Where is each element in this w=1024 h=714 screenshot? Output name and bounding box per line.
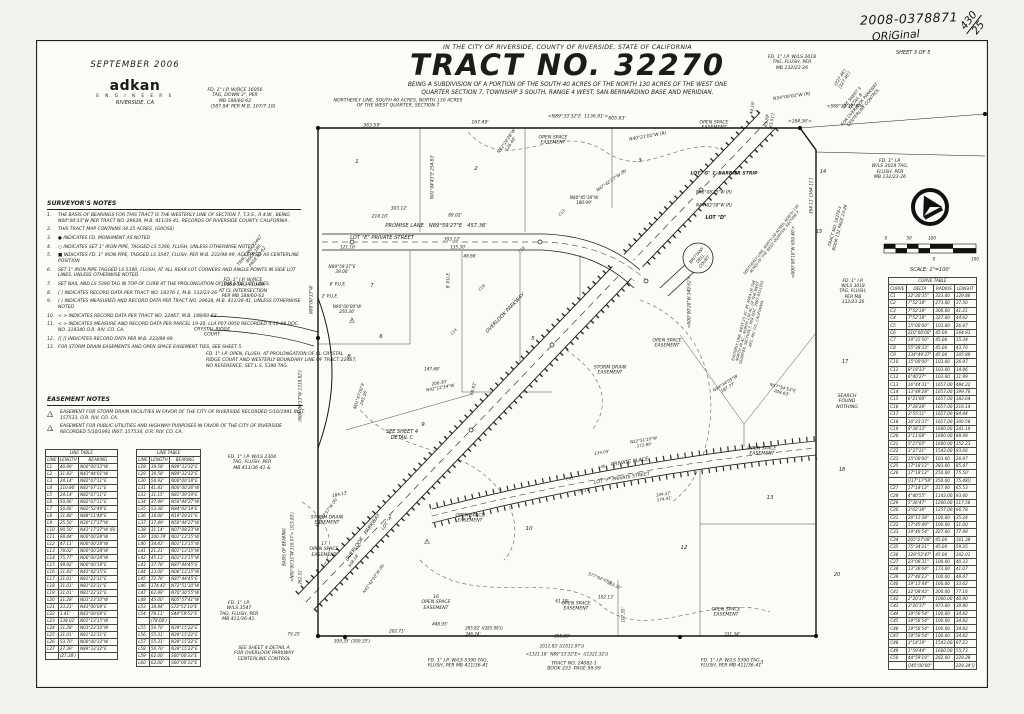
table-row: L4413.00'N06°13'15"W: [137, 568, 201, 575]
table-row: L4845.00'N05°57'41"W: [137, 596, 201, 603]
table-row: L2431.28'N03°23'10"W: [46, 624, 118, 631]
table-cell: N43°44'01"W: [78, 470, 117, 477]
table-cell: 1543.00: [934, 447, 955, 454]
table-cell: L18: [46, 582, 59, 589]
table-row: C172°55'11"1657.0084.44: [889, 411, 977, 418]
table-cell: 1657.00: [934, 411, 955, 418]
table-cell: 62.89': [149, 589, 169, 596]
table-cell: C44: [889, 610, 907, 617]
table-cell: 15°00'00": [906, 322, 934, 329]
table-row: C3575°34'21"45.0059.35: [889, 544, 977, 551]
table-row: C198°38'13"1600.00241.19: [889, 425, 977, 432]
table-cell: 1.41': [58, 610, 78, 617]
table-header-cell: RADIUS: [934, 285, 955, 292]
table-row: C1015°00'00"103.0026.97: [889, 359, 977, 366]
table-cell: 50.06': [58, 498, 78, 505]
table-cell: 55.73: [954, 647, 976, 654]
table-cell: 327.00: [934, 314, 955, 321]
table-row: C2517°18'12"283.0085.47: [889, 462, 977, 469]
table-row: C118°19'33"103.0014.96: [889, 366, 977, 373]
table-cell: C22: [889, 447, 907, 454]
table-cell: 65.53: [954, 484, 976, 491]
table-cell: 15°00'00": [906, 359, 934, 366]
table-cell: 45.00: [934, 337, 955, 344]
table-cell: 8°19'33": [906, 366, 934, 373]
table-cell: 37.76': [149, 561, 169, 568]
table-cell: L10: [46, 526, 59, 533]
table-cell: N50°44'27"W: [169, 498, 201, 505]
table-cell: 14.96: [954, 366, 976, 373]
table-cell: C15: [889, 396, 907, 403]
table-cell: L44: [137, 568, 150, 575]
table-row: L5478.11'S44°59'52"E: [137, 610, 201, 617]
table-cell: C50: [889, 654, 907, 661]
table-cell: N89°33'32"E: [169, 463, 201, 470]
surveyor-note-item: 9.( ) INDICATES MEASURED AND RECORD DATA…: [47, 299, 301, 311]
table-cell: C31: [889, 514, 907, 521]
table-cell: L22: [46, 610, 59, 617]
table-cell: C20: [889, 433, 907, 440]
table-cell: L27: [46, 645, 59, 652]
table-cell: 77.16: [954, 588, 976, 595]
table-cell: 37.50: [954, 300, 976, 307]
table-cell: 1657.00: [934, 381, 955, 388]
table-cell: 227.00: [934, 529, 955, 536]
table-row: L231.83'N43°44'01"W: [46, 470, 118, 477]
brittany-dell-court-road: [660, 243, 713, 296]
table-cell: 45.13': [149, 554, 169, 561]
table-cell: 1000.00: [934, 595, 955, 602]
table-cell: 33.21': [58, 603, 78, 610]
sheet-number: SHEET 3 OF 5: [896, 50, 930, 56]
table-row: L1931.01'N81°22'31"E: [46, 589, 118, 596]
table-cell: 44°59'19": [906, 654, 934, 661]
tract-boundary: [318, 128, 816, 636]
table-cell: L59: [137, 652, 150, 659]
table-cell: L30: [137, 477, 150, 484]
table-cell: 7°52'18": [906, 314, 934, 321]
table-row: L4572.76'N87°44'45"E: [137, 575, 201, 582]
table-row: C4419°56'54"100.0034.82: [889, 610, 977, 617]
table-cell: 273.00: [934, 300, 955, 307]
table-row: C215°27'05"1600.00152.23: [889, 440, 977, 447]
table-header-cell: LENGHT: [954, 285, 976, 292]
table-cell: N82°07'11"E: [78, 491, 117, 498]
table-cell: N82°07'11"E: [78, 484, 117, 491]
table-row: C3723°06'31"100.0040.33: [889, 558, 977, 565]
table-cell: 103.00: [934, 322, 955, 329]
table-cell: 31.00: [954, 521, 976, 528]
table-cell: N43°00'08"E: [78, 603, 117, 610]
table-cell: 27.39': [58, 645, 78, 652]
table-header-cell: LENGTH: [58, 456, 78, 463]
table-row: L1090.50'N43°17'37"W (R): [46, 526, 118, 533]
table-cell: N39°15'22"E: [169, 624, 201, 631]
table-cell: N00°00'18"E: [78, 561, 117, 568]
table-cell: 85.47: [954, 462, 976, 469]
table-cell: 1°59'44": [906, 647, 934, 654]
table-cell: 26.97: [954, 322, 976, 329]
prolongation-note: FD. 1" I.P. OPEN, FLUSH, AT PROLONGATION…: [206, 352, 358, 370]
table-cell: S00°00'33"E: [169, 652, 201, 659]
table-row: C2617°18'12"250.0075.50': [889, 470, 977, 477]
table-cell: 75°34'21": [906, 544, 934, 551]
table-cell: 3°14'19": [906, 640, 934, 647]
table-cell: N00°00'28"W: [78, 554, 117, 561]
table-cell: C28: [889, 492, 907, 499]
table-header-cell: LINE: [137, 456, 150, 463]
table-cell: L55: [137, 624, 150, 631]
table-cell: 229.34']]: [954, 662, 976, 669]
table-cell: 3°11'08": [906, 433, 934, 440]
table-cell: 39.58': [149, 463, 169, 470]
table-cell: 152.23: [954, 440, 976, 447]
table-cell: [46, 652, 59, 659]
table-cell: L34: [137, 498, 150, 505]
table-cell: 22°20'35": [906, 292, 934, 299]
table-header-cell: BEARING: [169, 456, 201, 463]
table-cell: 2°55'11": [906, 411, 934, 418]
table-cell: 45.00: [934, 329, 955, 336]
table-cell: N03°23'10"W: [78, 624, 117, 631]
table-cell: L47: [137, 589, 150, 596]
table-row: [[45°00'00"229.34']]: [889, 662, 977, 669]
table-cell: 31.28': [58, 624, 78, 631]
table-cell: 53.70': [58, 638, 78, 645]
table-cell: 5°36'47": [906, 499, 934, 506]
table-cell: S44°59'52"E: [169, 610, 201, 617]
table-row: C1316°44'31"1657.00484.22: [889, 381, 977, 388]
table-cell: L28: [137, 463, 150, 470]
table-row: L5755.31'N39°15'22"E: [137, 638, 201, 645]
table-cell: 55°38'33": [906, 344, 934, 351]
table-cell: 200.00: [934, 588, 955, 595]
table-cell: N05°57'41"W: [169, 596, 201, 603]
table-row: L3737.49'N50°44'27"W: [137, 519, 201, 526]
table-row: L1831.01'N81°22'31"E: [46, 582, 118, 589]
table-cell: N87°44'45"E: [169, 575, 201, 582]
table-cell: 34.82: [954, 632, 976, 639]
table-cell: 16°44'31": [906, 381, 934, 388]
surveyor-note-item: 5.■ INDICATES FD. 1" IRON PIPE, TAGGED L…: [47, 253, 301, 265]
table-row: L650.06'N82°07'11"E: [46, 498, 118, 505]
table-cell: 56.70': [149, 624, 169, 631]
table-row: C491°59'44"1600.0055.73: [889, 647, 977, 654]
table-cell: 78.02': [58, 547, 78, 554]
table-cell: N89°33'32"E: [78, 645, 117, 652]
table-row: C483°14'19"1543.0087.23: [889, 640, 977, 647]
lot-lines: [318, 128, 816, 636]
table-cell: 22°08'43": [906, 588, 934, 595]
table-cell: C39: [889, 573, 907, 580]
table-row: C3927°46'23"100.0048.47: [889, 573, 977, 580]
table-cell: L29: [137, 470, 150, 477]
table-cell: 45.00: [934, 551, 955, 558]
table-cell: 41.21: [954, 307, 976, 314]
table-row: L3553.38'N84°02'19"E: [137, 505, 201, 512]
table-row: L2133.21'N43°00'08"E: [46, 603, 118, 610]
table-cell: 31.01': [58, 575, 78, 582]
table-cell: 300.00: [934, 307, 955, 314]
table-cell: 1600.00: [934, 425, 955, 432]
table-cell: 75.50': [954, 470, 976, 477]
table-row: L324.14'N82°07'11"E: [46, 477, 118, 484]
table-cell: 17°18'12": [906, 470, 934, 477]
surveyor-note-item: 6.SET 1" IRON PIPE TAGGED LS 5390, FLUSH…: [47, 268, 301, 280]
table-cell: C43: [889, 603, 907, 610]
table-cell: C23: [889, 455, 907, 462]
table-cell: [137, 617, 150, 624]
table-cell: 13.00': [149, 568, 169, 575]
table-cell: 45.00': [149, 596, 169, 603]
table-cell: 229.28: [954, 654, 976, 661]
table-row: C122°20'35"333.00129.86: [889, 292, 977, 299]
table-cell: 250.00: [934, 470, 955, 477]
table-cell: 129.86: [954, 292, 976, 299]
table-row: C284°40'55"1143.0093.40: [889, 492, 977, 499]
table-cell: 117.58: [954, 499, 976, 506]
table-row: L2727.39'N89°33'32"E: [46, 645, 118, 652]
table-cell: N00°00'28"W: [78, 547, 117, 554]
table-cell: 19°56'54": [906, 610, 934, 617]
table-cell: 2°20'37": [906, 603, 934, 610]
table-cell: C29: [889, 499, 907, 506]
easement-note-item: △2EASEMENT FOR PUBLIC UTILITIES AND HIGH…: [47, 424, 305, 436]
table-cell: 100.00: [934, 617, 955, 624]
table-cell: 205°27'08": [906, 536, 934, 543]
table-cell: 19°56'54": [906, 632, 934, 639]
table-cell: 48.47: [954, 573, 976, 580]
table-cell: N01°13'15"W: [78, 617, 117, 624]
easement-triangle-icon: △1: [47, 410, 60, 422]
table-cell: L40: [137, 540, 150, 547]
table-row: C37°52'18"300.0041.21: [889, 307, 977, 314]
table-cell: 283.00: [934, 462, 955, 469]
table-cell: C14: [889, 388, 907, 395]
table-row: L5856.70'N39°15'22"E: [137, 645, 201, 652]
table-cell: C10: [889, 359, 907, 366]
table-cell: N81°22'31"E: [78, 575, 117, 582]
table-cell: L23: [46, 617, 59, 624]
table-cell: N01°13'15"W: [169, 533, 201, 540]
table-row: L3831.14'N07°08'23"W: [137, 526, 201, 533]
table-row: C47°52'18"327.0044.92: [889, 314, 977, 321]
table-cell: 23°06'31": [906, 558, 934, 565]
table-cell: N03°23'10"W: [78, 596, 117, 603]
table-cell: L41: [137, 547, 150, 554]
table-cell: 17°18'12": [906, 462, 934, 469]
table-row: C27°52'18"273.0037.50: [889, 300, 977, 307]
table-cell: 39.58': [149, 470, 169, 477]
table-cell: 19°56'54": [906, 625, 934, 632]
table-row: L4034.43'N01°13'15"W: [137, 540, 201, 547]
table-cell: 15.34: [954, 337, 976, 344]
table-cell: N81°22'31"E: [78, 582, 117, 589]
table-cell: 292.00: [934, 654, 955, 661]
table-cell: 40.99': [58, 463, 78, 470]
table-header-cell: LENGTH: [149, 456, 169, 463]
table-row: L2031.28'N03°23'10"W: [46, 596, 118, 603]
table-row: L3331.15'N81°39'19"E: [137, 491, 201, 498]
table-cell: 50.06': [58, 505, 78, 512]
table-cell: C47: [889, 632, 907, 639]
table-cell: 31.01': [58, 582, 78, 589]
table-cell: L42: [137, 554, 150, 561]
table-row: L4762.89'N70°30'55"W: [137, 589, 201, 596]
table-cell: 1600.00: [934, 647, 955, 654]
table-cell: N00°00'26"W: [169, 484, 201, 491]
table-cell: 19°56'54": [906, 617, 934, 624]
table-cell: L43: [137, 561, 150, 568]
table-cell: L38: [137, 526, 150, 533]
table-cell: C16: [889, 403, 907, 410]
table-row: L1598.92'N00°00'18"E: [46, 561, 118, 568]
table-cell: 210°00'00": [906, 329, 934, 336]
surveyors-notes-heading: SURVEYOR'S NOTES: [47, 200, 301, 210]
table-cell: 103.00: [934, 359, 955, 366]
table-row: L1247.11'N00°00'28"W: [46, 540, 118, 547]
table-cell: 100.00: [934, 573, 955, 580]
table-cell: C2: [889, 300, 907, 307]
table-cell: L33: [137, 491, 150, 498]
table-row: L1731.01'N81°22'31"E: [46, 575, 118, 582]
table-cell: 21.21': [149, 547, 169, 554]
table-row: L4245.13'N01°13'15"W: [137, 554, 201, 561]
table-cell: 40.33: [954, 558, 976, 565]
firm-location: RIVERSIDE, CA: [60, 100, 210, 106]
table-cell: 34.43': [149, 540, 169, 547]
table-cell: 53.38': [149, 505, 169, 512]
table-cell: C35: [889, 544, 907, 551]
table-cell: L11: [46, 533, 59, 540]
table-cell: N81°39'19"E: [169, 491, 201, 498]
curve-table: CURVE TABLECURVEDELTARADIUSLENGHTC122°20…: [888, 277, 977, 670]
table-cell: N43°17'37"W (R): [78, 526, 117, 533]
table-cell: 93.06: [954, 447, 976, 454]
table-cell: N06°13'15"W: [169, 568, 201, 575]
table-row: C855°38'33"45.0043.70: [889, 344, 977, 351]
table-row: L4121.21'N01°13'15"W: [137, 547, 201, 554]
table-cell: [[17°17'58": [906, 477, 934, 484]
table-cell: N84°02'19"E: [169, 505, 201, 512]
table-cell: 1143.00: [934, 492, 955, 499]
surveyor-note-item: 4.○ INDICATES SET 1" IRON PIPE, TAGGED L…: [47, 245, 301, 251]
table-cell: 138.01': [58, 617, 78, 624]
table-cell: L20: [46, 596, 59, 603]
table-row: L6062.00'S00°00'33"E: [137, 659, 201, 666]
line-table-2: LINE TABLELINELENGTHBEARINGL2839.58'N89°…: [136, 449, 201, 667]
scanned-tract-map-sheet: { "annotations": { "doc_number": "2008-0…: [0, 0, 1024, 714]
table-cell: N00°00'28"W: [78, 540, 117, 547]
table-row: L5556.70'N39°15'22"E: [137, 624, 201, 631]
table-cell: L19: [46, 589, 59, 596]
table-cell: 13°49'28": [906, 388, 934, 395]
table-cell: L1: [46, 463, 59, 470]
table-cell: 44.92: [954, 314, 976, 321]
table-cell: N01°13'15"W: [169, 547, 201, 554]
subtitle-line-1: BEING A SUBDIVISION OF A PORTION OF THE …: [295, 81, 840, 89]
table-cell: C41: [889, 588, 907, 595]
table-cell: 98.92': [58, 561, 78, 568]
table-cell: 13°36'04": [906, 566, 934, 573]
table-row: C126°40'27"103.0011.99: [889, 374, 977, 381]
firm-type: E N G I N E E R S: [60, 93, 210, 98]
table-cell: L16: [46, 568, 59, 575]
table-row: L140.99'N00°00'33"W: [46, 463, 118, 470]
surveyor-note-item: 3.● INDICATES FD. MONUMENT AS NOTED: [47, 236, 301, 242]
table-cell: 31.83': [58, 568, 78, 575]
table-row: L3618.00'N19°29'21"E: [137, 512, 201, 519]
table-row: L39100.79'N01°13'15"W: [137, 533, 201, 540]
table-cell: N00°00'18"E: [169, 477, 201, 484]
title-block-header: IN THE CITY OF RIVERSIDE, COUNTY OF RIVE…: [295, 44, 840, 97]
table-cell: C4: [889, 314, 907, 321]
table-cell: C18: [889, 418, 907, 425]
table-cell: [934, 662, 955, 669]
table-cell: L56: [137, 631, 150, 638]
table-row: C4122°08'43"200.0077.16: [889, 588, 977, 595]
table-cell: 78.11': [149, 610, 169, 617]
table-row: C719°31'50"45.0015.34: [889, 337, 977, 344]
monument-symbols: [316, 112, 987, 639]
table-cell: N70°30'55"W: [169, 589, 201, 596]
table-cell: 110.80': [58, 484, 78, 491]
table-cell: 59.35: [954, 544, 976, 551]
table-header-cell: LINE: [46, 456, 59, 463]
table-cell: 8°38'13": [906, 425, 934, 432]
table-row: C3813°36'04"173.0041.07: [889, 566, 977, 573]
table-cell: C48: [889, 640, 907, 647]
promise-lane-road: [322, 234, 646, 288]
table-cell: L24: [46, 624, 59, 631]
table-header-cell: CURVE: [889, 285, 907, 292]
table-cell: L12: [46, 540, 59, 547]
table-cell: L9: [46, 519, 59, 526]
table-cell: 38.84': [149, 603, 169, 610]
table-cell: C9: [889, 351, 907, 358]
table-cell: [169, 617, 201, 624]
table-row: L831.88'N88°11'48"E: [46, 512, 118, 519]
table-cell: [[45°00'00": [906, 662, 934, 669]
table-cell: 100.00: [934, 632, 955, 639]
table-row: C223°27'21"1543.0093.06: [889, 447, 977, 454]
surveyor-note-item: 8.[ ] INDICATES RECORD DATA PER TRACT NO…: [47, 291, 301, 297]
subtitle-line-2: QUARTER SECTION 7, TOWNSHIP 3 SOUTH, RAN…: [295, 89, 840, 97]
table-cell: 5°27'05": [906, 440, 934, 447]
table-row: (78.00'): [137, 617, 201, 624]
table-cell: 55.31': [149, 631, 169, 638]
table-cell: 100.79': [149, 533, 169, 540]
table-cell: 174.41': [149, 582, 169, 589]
table-cell: N82°52'49"E: [78, 505, 117, 512]
table-cell: (27.38'): [58, 652, 78, 659]
table-cell: N82°07'11"E: [78, 477, 117, 484]
table-cell: L7: [46, 505, 59, 512]
table-cell: C3: [889, 307, 907, 314]
table-row: C303°02'38"1257.0066.78: [889, 507, 977, 514]
table-cell: 102.01: [954, 551, 976, 558]
table-cell: C30: [889, 507, 907, 514]
table-cell: 24.14': [58, 477, 78, 484]
table-cell: 27°46'23": [906, 573, 934, 580]
table-cell: N01°13'15"W: [169, 540, 201, 547]
table-cell: L17: [46, 575, 59, 582]
table-cell: 100.00: [934, 581, 955, 588]
table-cell: L54: [137, 610, 150, 617]
table-cell: 26.97: [954, 359, 976, 366]
table-row: C1413°49'28"1657.00399.78: [889, 388, 977, 395]
table-cell: N81°22'31"E: [78, 589, 117, 596]
